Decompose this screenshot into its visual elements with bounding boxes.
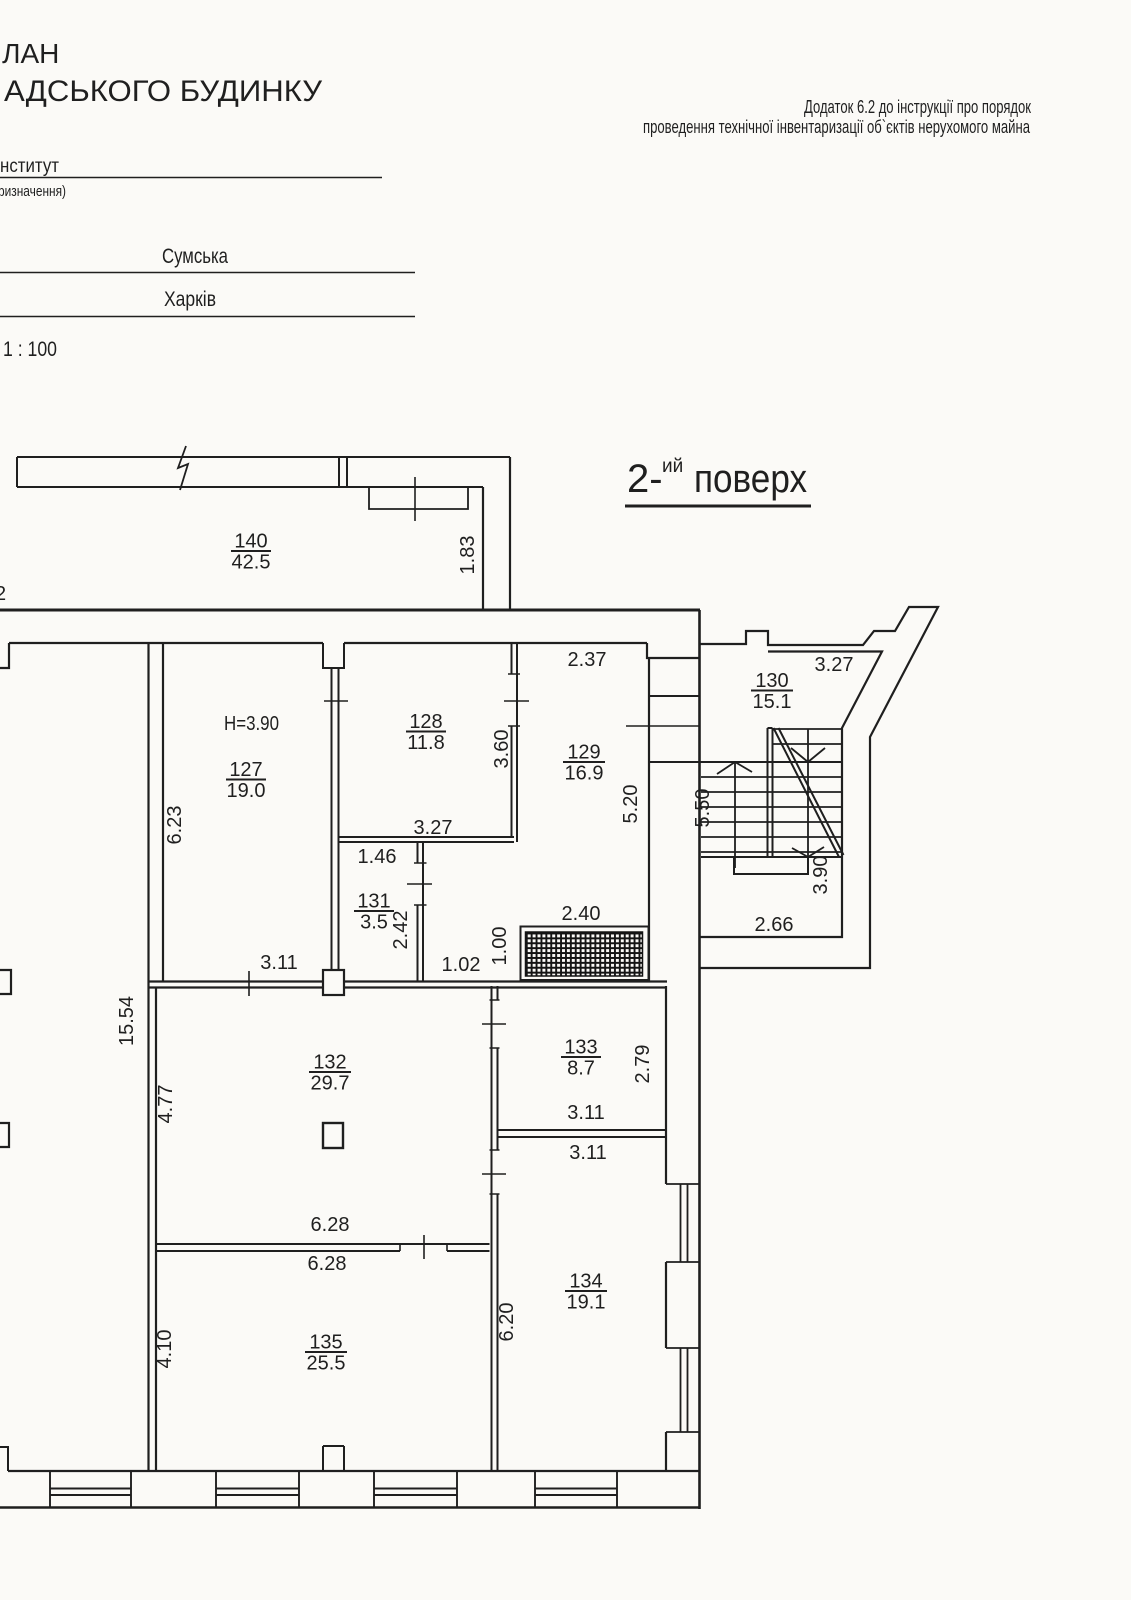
svg-text:3.11: 3.11: [260, 952, 297, 974]
svg-text:3.90: 3.90: [810, 856, 832, 895]
svg-text:131: 131: [357, 891, 390, 913]
svg-text:19.1: 19.1: [567, 1292, 606, 1314]
svg-text:2: 2: [0, 583, 6, 605]
svg-text:29.7: 29.7: [311, 1073, 350, 1095]
svg-text:Додаток 6.2 до інструкції про: Додаток 6.2 до інструкції про порядок: [804, 97, 1031, 117]
svg-text:16.9: 16.9: [565, 763, 604, 785]
svg-text:3.27: 3.27: [815, 654, 854, 676]
svg-text:133: 133: [564, 1037, 597, 1059]
svg-text:поверх: поверх: [694, 457, 807, 501]
svg-text:15.1: 15.1: [753, 691, 792, 713]
svg-text:1.02: 1.02: [442, 954, 481, 976]
svg-text:4.77: 4.77: [155, 1085, 177, 1124]
svg-text:2.40: 2.40: [562, 903, 601, 925]
svg-text:135: 135: [309, 1332, 342, 1354]
svg-text:130: 130: [755, 670, 788, 692]
svg-text:2.66: 2.66: [755, 914, 794, 936]
svg-text:127: 127: [229, 759, 262, 781]
svg-text:42.5: 42.5: [232, 552, 271, 574]
svg-text:1.83: 1.83: [457, 536, 479, 575]
svg-text:4.10: 4.10: [154, 1330, 176, 1369]
svg-text:H=3.90: H=3.90: [224, 713, 279, 735]
svg-text:134: 134: [569, 1271, 602, 1293]
svg-text:нститут: нститут: [0, 156, 59, 177]
svg-text:11.8: 11.8: [407, 732, 444, 754]
svg-text:проведення технічної інвентари: проведення технічної інвентаризації об`є…: [643, 117, 1031, 137]
svg-text:3.11: 3.11: [569, 1142, 606, 1164]
svg-text:2.42: 2.42: [390, 911, 412, 950]
svg-text:3.27: 3.27: [414, 817, 453, 839]
svg-text:15.54: 15.54: [116, 996, 138, 1046]
svg-text:2.37: 2.37: [568, 649, 607, 671]
svg-text:1.46: 1.46: [358, 846, 397, 868]
svg-text:ий: ий: [662, 456, 683, 477]
svg-text:1.00: 1.00: [489, 927, 511, 966]
svg-text:25.5: 25.5: [307, 1353, 346, 1375]
svg-text:ПЛАН: ПЛАН: [0, 38, 59, 69]
svg-text:1 : 100: 1 : 100: [3, 338, 57, 361]
svg-text:Харків: Харків: [164, 288, 216, 311]
svg-text:140: 140: [234, 531, 267, 553]
svg-text:19.0: 19.0: [227, 780, 266, 802]
svg-text:3.5: 3.5: [360, 912, 388, 934]
svg-text:132: 132: [313, 1052, 346, 1074]
svg-text:ризначення): ризначення): [0, 184, 66, 200]
svg-text:128: 128: [409, 711, 442, 733]
svg-text:АДСЬКОГО БУДИНКУ: АДСЬКОГО БУДИНКУ: [4, 75, 323, 108]
svg-text:6.23: 6.23: [164, 806, 186, 845]
svg-text:2.79: 2.79: [632, 1045, 654, 1084]
svg-text:2-: 2-: [627, 457, 663, 501]
svg-text:6.20: 6.20: [496, 1303, 518, 1342]
svg-text:Сумська: Сумська: [162, 245, 228, 268]
svg-text:8.7: 8.7: [567, 1058, 595, 1080]
svg-text:3.11: 3.11: [567, 1102, 604, 1124]
svg-text:6.28: 6.28: [311, 1214, 350, 1236]
svg-text:3.60: 3.60: [491, 730, 513, 769]
svg-text:5.20: 5.20: [620, 785, 642, 824]
svg-text:6.28: 6.28: [308, 1253, 347, 1275]
svg-text:129: 129: [567, 742, 600, 764]
